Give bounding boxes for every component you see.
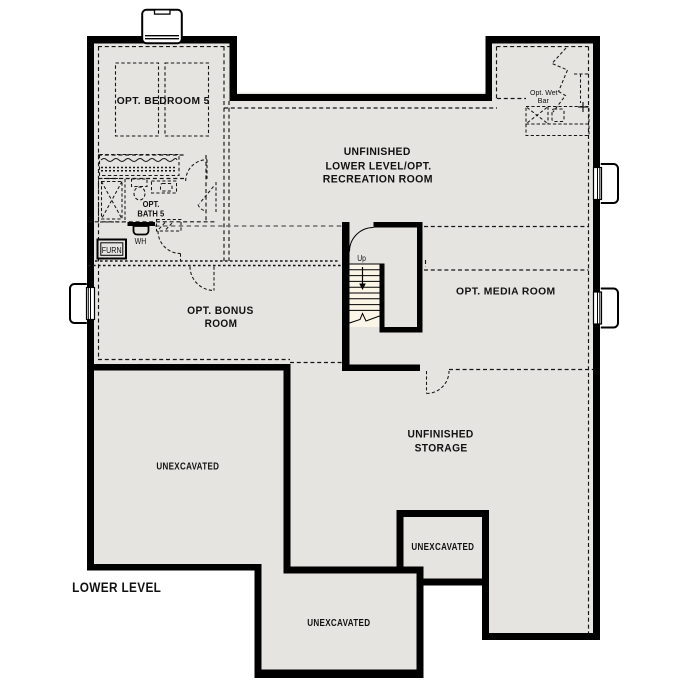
svg-text:OPT. MEDIA ROOM: OPT. MEDIA ROOM	[456, 285, 556, 297]
svg-text:FURN: FURN	[102, 246, 122, 255]
svg-text:STORAGE: STORAGE	[415, 443, 468, 455]
svg-text:OPT. BEDROOM 5: OPT. BEDROOM 5	[117, 95, 210, 107]
svg-text:UNFINISHED: UNFINISHED	[344, 146, 411, 158]
svg-text:UNFINISHED: UNFINISHED	[408, 429, 474, 441]
svg-text:Bar: Bar	[538, 96, 550, 105]
svg-text:BATH 5: BATH 5	[137, 209, 164, 219]
svg-text:RECREATION ROOM: RECREATION ROOM	[323, 174, 433, 186]
svg-text:UNEXCAVATED: UNEXCAVATED	[411, 542, 474, 553]
svg-text:OPT.: OPT.	[143, 199, 160, 209]
svg-text:WH: WH	[135, 237, 147, 246]
svg-text:UNEXCAVATED: UNEXCAVATED	[156, 462, 219, 473]
svg-text:UNEXCAVATED: UNEXCAVATED	[307, 618, 370, 629]
svg-text:LOWER LEVEL/OPT.: LOWER LEVEL/OPT.	[325, 160, 431, 172]
svg-text:OPT. BONUS: OPT. BONUS	[187, 305, 254, 317]
svg-text:LOWER LEVEL: LOWER LEVEL	[72, 580, 161, 595]
svg-text:Up: Up	[357, 253, 366, 263]
svg-text:ROOM: ROOM	[205, 318, 238, 330]
